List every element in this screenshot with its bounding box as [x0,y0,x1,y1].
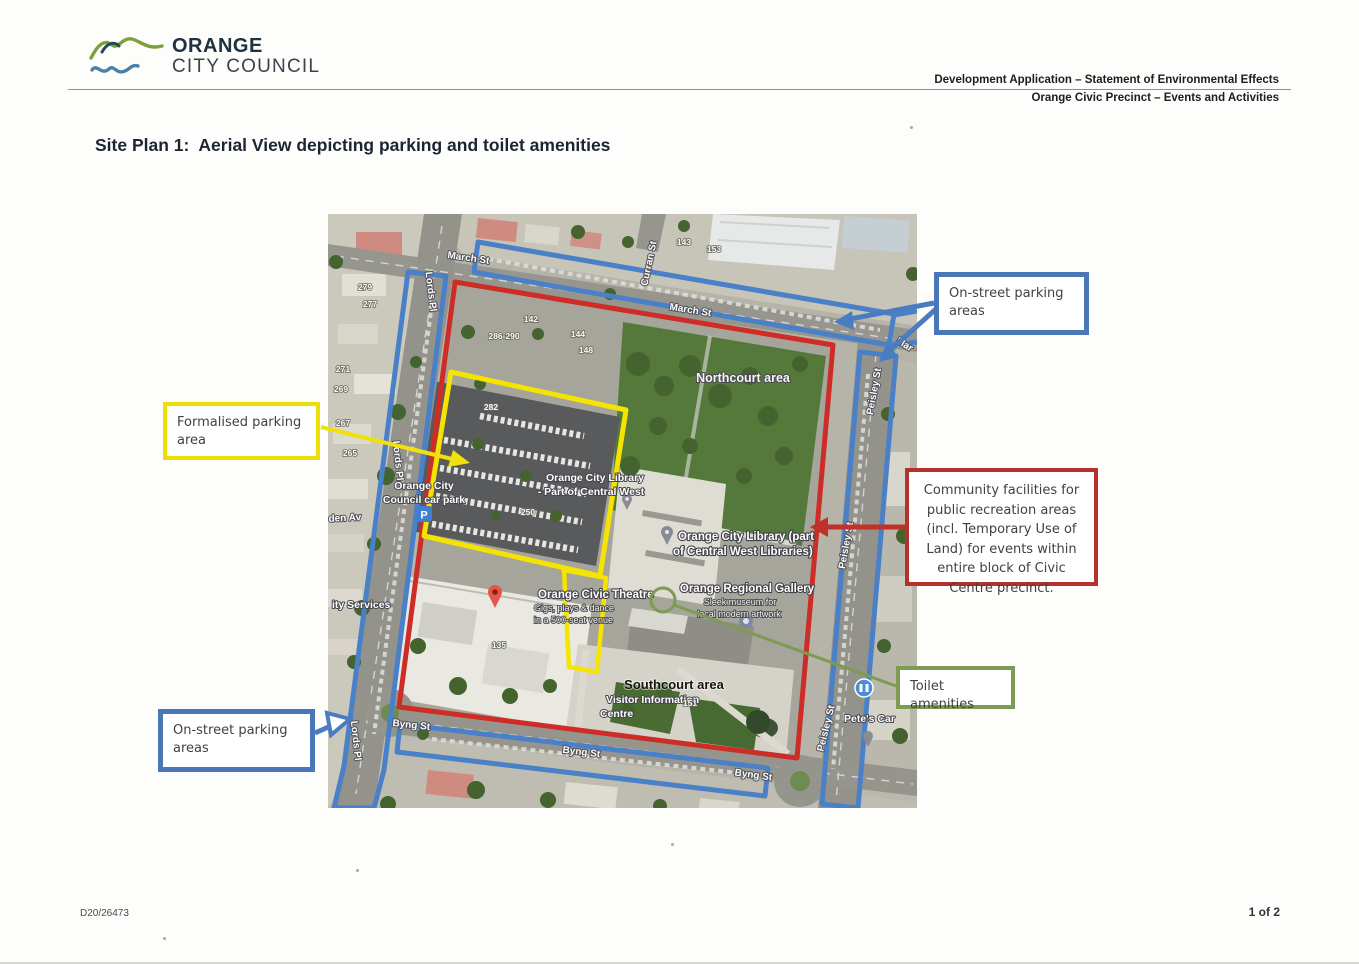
house-number: 271 [336,364,350,374]
aerial-map-svg: P [328,214,917,808]
label-services-partial: ity Services [332,599,391,611]
label-theatre-2: Gigs, plays & dance [534,603,614,613]
house-number: 151 [683,698,697,708]
orange-city-council-logo: ORANGE CITY COUNCIL [88,30,320,82]
house-number: 265 [343,448,357,458]
page-title: Site Plan 1: Aerial View depicting parki… [95,135,610,156]
house-number: 142 [524,314,538,324]
house-number: 153 [707,244,721,254]
label-library-1: Orange City Library (part [678,531,814,543]
house-number: 282 [484,402,498,412]
house-number: 269 [334,384,348,394]
parking-icon-glyph: P [420,510,427,522]
doc-header-line1: Development Application – Statement of E… [934,74,1279,86]
label-theatre-3: in a 500-seat venue [534,615,613,625]
label-library-small-1: Orange City Library [546,472,644,484]
callout-community-facilities: Community facilities for public recreati… [905,468,1098,586]
house-number: 144 [571,329,585,339]
logo-text: ORANGE CITY COUNCIL [172,36,320,77]
callout-text: Formalised parking area [177,415,301,448]
house-number: 279 [358,282,372,292]
aerial-map: P [328,214,917,808]
house-number: 277 [363,299,377,309]
house-number: 250 [521,507,535,517]
house-number: 267 [336,418,350,428]
callout-text: On-street parking areas [173,723,288,756]
callout-text: Community facilities for public recreati… [924,483,1079,596]
callout-onstreet-parking-bottom: On-street parking areas [158,709,315,772]
label-visitor-info-2: Centre [600,708,633,720]
document-page: ORANGE CITY COUNCIL Development Applicat… [0,0,1359,964]
label-council-carpark-2: Council car park [383,494,465,506]
house-number: 148 [579,345,593,355]
label-petes-car: Pete's Car [844,713,895,725]
scan-speck [910,126,913,129]
label-gallery-1: Orange Regional Gallery [680,583,815,595]
house-number: 135 [492,640,506,650]
label-southcourt: Southcourt area [624,677,724,692]
page-number: 1 of 2 [1249,905,1280,919]
document-reference: D20/26473 [80,908,129,919]
doc-header-line2: Orange Civic Precinct – Events and Activ… [1031,92,1279,104]
house-number: 286-290 [488,331,519,341]
label-council-carpark-1: Orange City [394,480,454,492]
callout-onstreet-parking-top: On-street parking areas [934,272,1089,335]
callout-text: On-street parking areas [949,286,1064,319]
house-number: 143 [677,237,691,247]
scan-speck [356,869,359,872]
scan-speck [163,937,166,940]
label-northcourt: Northcourt area [696,371,791,385]
label-library-small-2: - Part of Central West [538,486,645,498]
label-gallery-3: local modern artwork [697,609,781,619]
label-theatre-1: Orange Civic Theatre [538,589,654,601]
logo-mountain-river-icon [88,30,166,82]
logo-name: ORANGE [172,36,320,57]
parking-icon: P [416,506,432,522]
callout-formalised-parking: Formalised parking area [163,402,320,460]
street-label-avenue: den Av [328,512,362,525]
label-gallery-2: Sleek museum for [704,597,777,607]
scan-speck [671,843,674,846]
toilet-icon [855,679,873,697]
label-library-2: of Central West Libraries) [673,546,813,558]
callout-text: Toilet amenities [910,679,974,712]
logo-subname: CITY COUNCIL [172,57,320,77]
header-rule [68,89,1291,90]
callout-toilet-amenities: Toilet amenities [896,666,1015,709]
